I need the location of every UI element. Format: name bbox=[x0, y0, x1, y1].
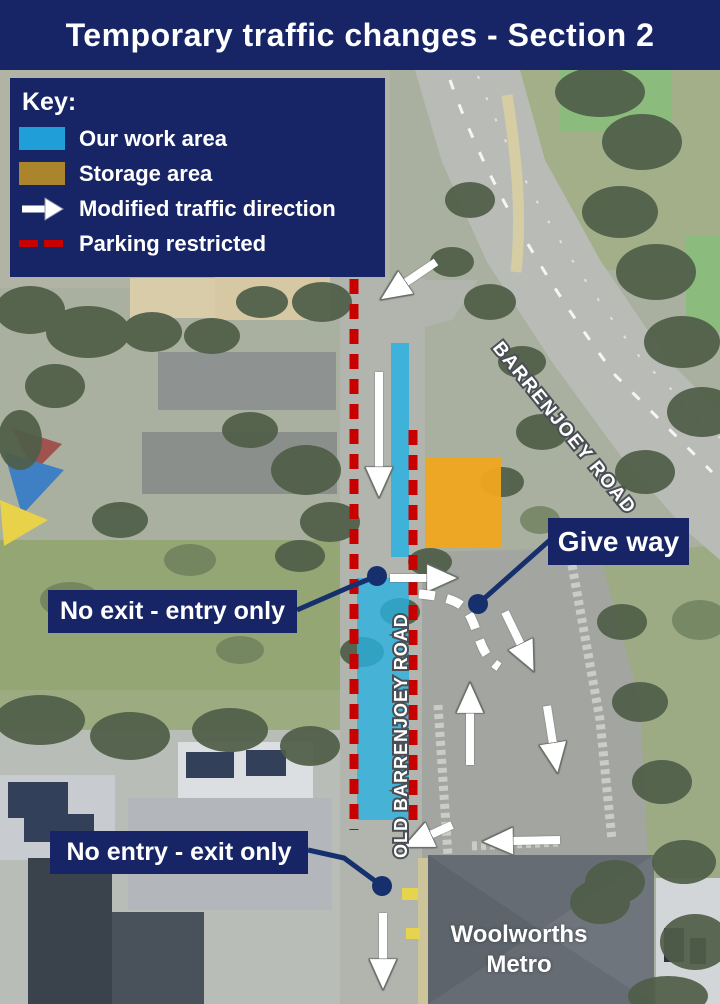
storage-area bbox=[426, 458, 501, 548]
no-entry-dot bbox=[372, 876, 392, 896]
key-item-traffic-direction: Modified traffic direction bbox=[19, 191, 385, 226]
woolworths-line2: Metro bbox=[428, 950, 610, 980]
no-entry-label: No entry - exit only bbox=[50, 831, 308, 874]
work-area-north bbox=[391, 343, 409, 557]
woolworths-metro-label: Woolworths Metro bbox=[428, 920, 610, 980]
give-way-dot bbox=[468, 594, 488, 614]
title-bar: Temporary traffic changes - Section 2 bbox=[0, 0, 720, 70]
page-title: Temporary traffic changes - Section 2 bbox=[66, 17, 655, 54]
key-item-storage-area: Storage area bbox=[19, 156, 385, 191]
restricted-dash-icon bbox=[19, 231, 65, 257]
give-way-label: Give way bbox=[548, 518, 689, 565]
key-item-work-area: Our work area bbox=[19, 121, 385, 156]
key-item-parking-restricted: Parking restricted bbox=[19, 226, 385, 261]
map-key: Key: Our work area Storage area Modified… bbox=[10, 78, 385, 277]
key-item-label: Modified traffic direction bbox=[79, 196, 336, 222]
traffic-arrow-icon bbox=[19, 196, 65, 222]
storage-area-swatch bbox=[19, 162, 65, 185]
key-item-label: Storage area bbox=[79, 161, 212, 187]
key-heading: Key: bbox=[22, 88, 385, 117]
key-item-label: Our work area bbox=[79, 126, 227, 152]
key-item-label: Parking restricted bbox=[79, 231, 266, 257]
road-label-old-barrenjoey: OLD BARRENJOEY ROAD bbox=[391, 613, 411, 858]
no-exit-dot bbox=[367, 566, 387, 586]
no-exit-label: No exit - entry only bbox=[48, 590, 297, 633]
woolworths-line1: Woolworths bbox=[428, 920, 610, 950]
arrow-carpark-left bbox=[512, 840, 560, 841]
work-area-swatch bbox=[19, 127, 65, 150]
infographic: Temporary traffic changes - Section 2 bbox=[0, 0, 720, 1004]
